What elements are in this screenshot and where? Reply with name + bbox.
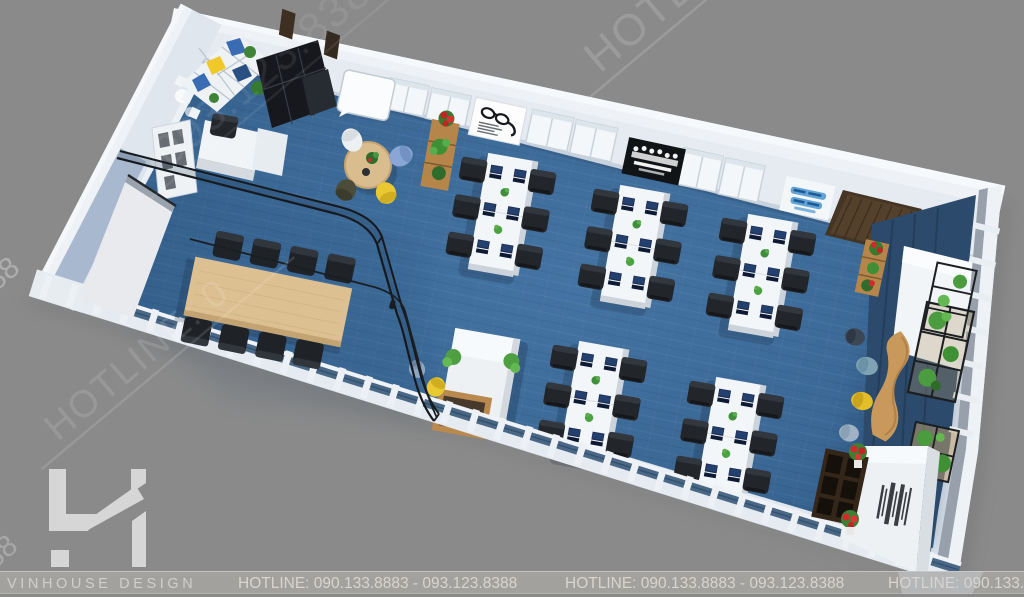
svg-text:HOTLINE: 090.133.: HOTLINE: 090.133. <box>888 575 1024 592</box>
svg-text:VINHOUSE DESIGN: VINHOUSE DESIGN <box>7 576 196 592</box>
svg-text:HOTLINE: 090.133.8883 - 093.12: HOTLINE: 090.133.8883 - 093.123.8388 <box>565 575 844 592</box>
svg-text:HOTLINE: 090.133.8883 - 093.12: HOTLINE: 090.133.8883 - 093.123.8388 <box>238 575 517 592</box>
